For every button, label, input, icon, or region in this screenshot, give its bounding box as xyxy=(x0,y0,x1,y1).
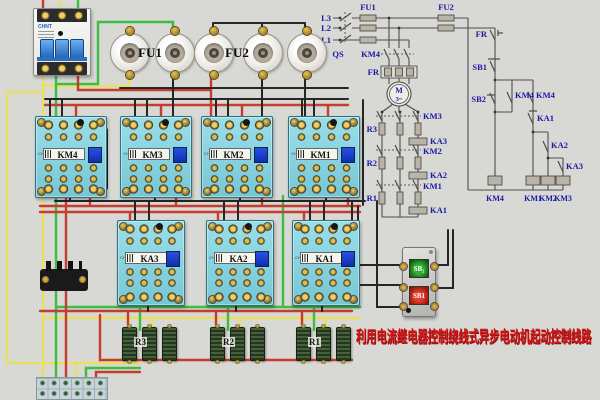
contactor-label: KM4 xyxy=(43,148,85,160)
fu2-photo-label: FU2 xyxy=(222,45,252,61)
terminal-row[interactable] xyxy=(294,163,354,173)
contactor-km1[interactable]: CHNT KM1 xyxy=(288,116,360,198)
coil-window xyxy=(255,251,269,267)
terminal-row[interactable] xyxy=(207,163,267,173)
coil-window xyxy=(341,251,355,267)
fu1-schematic-label: FU1 xyxy=(360,2,376,12)
terminal-row[interactable] xyxy=(41,163,101,173)
fuse-terminal xyxy=(171,71,179,79)
fuse-terminal xyxy=(259,71,267,79)
qs-label: QS xyxy=(332,49,344,59)
breaker-brand-text: CHNT xyxy=(38,24,52,30)
motor-m-label: M xyxy=(395,86,403,95)
terminal-row[interactable] xyxy=(126,119,186,131)
fr-main-label: FR xyxy=(368,67,380,77)
fuse-core xyxy=(170,48,180,58)
start-button-sb2[interactable]: SB₂ xyxy=(409,259,429,278)
fuse-terminal xyxy=(126,71,134,79)
coil-window xyxy=(166,251,180,267)
fuse-core xyxy=(125,48,135,58)
terminal-row[interactable] xyxy=(212,236,268,246)
ctl-fr-label: FR xyxy=(476,29,488,39)
rotor-ka1-label: KA1 xyxy=(430,205,447,215)
ctl-ka3-label: KA3 xyxy=(566,161,583,171)
diagram-title: 利用电流继电器控制绕线式异步电动机起动控制线路 xyxy=(356,323,592,347)
resistor-label: R3 xyxy=(134,337,147,347)
phase-l3-label: L3 xyxy=(321,13,331,23)
button-terminal[interactable] xyxy=(431,263,438,270)
schematic-diagram: L3 L2 L1 QS FU1 FU2 KM4 FR M 3~ KM3 R3 K… xyxy=(321,2,583,217)
connector-fins xyxy=(46,261,82,271)
resistor-coil xyxy=(336,327,351,361)
push-button-station[interactable]: SB₂ SB1 xyxy=(402,247,436,317)
breaker-toggle-row[interactable] xyxy=(40,39,84,57)
coil-window xyxy=(88,147,102,163)
rotor-r2-label: R2 xyxy=(367,158,377,168)
resistor-group-r2[interactable]: R2 xyxy=(210,327,263,361)
ctl-ka2-label: KA2 xyxy=(551,140,568,150)
terminal-row[interactable] xyxy=(298,278,354,288)
terminal-row[interactable] xyxy=(126,132,186,142)
terminal-row[interactable] xyxy=(212,267,268,277)
terminal-row[interactable] xyxy=(207,132,267,142)
terminal-strip[interactable] xyxy=(36,377,108,400)
relay-ka1[interactable]: CHNT KA1 xyxy=(292,220,360,306)
breaker-top-terminals[interactable] xyxy=(37,9,87,22)
wire-connector-block[interactable] xyxy=(40,269,88,291)
coil-km4-label: KM4 xyxy=(486,194,504,203)
terminal-row[interactable] xyxy=(123,267,179,277)
relay-ka3[interactable]: CHNT KA3 xyxy=(117,220,185,306)
coil-window xyxy=(173,147,187,163)
terminal-row[interactable] xyxy=(41,132,101,142)
contactor-label: KM2 xyxy=(209,148,251,160)
fuse-terminal xyxy=(259,27,267,35)
terminal-row[interactable] xyxy=(207,183,267,195)
relay-label: KA2 xyxy=(214,252,256,264)
aux-button-icon[interactable] xyxy=(77,119,84,126)
terminal-row[interactable] xyxy=(207,119,267,131)
rotor-km2-label: KM2 xyxy=(423,146,442,156)
terminal-row[interactable] xyxy=(123,223,179,235)
rotor-r1-label: R1 xyxy=(367,193,377,203)
terminal-row[interactable] xyxy=(298,236,354,246)
resistor-label: R1 xyxy=(308,337,321,347)
resistor-group-r3[interactable]: R3 xyxy=(122,327,175,361)
resistor-coil xyxy=(162,327,177,361)
rotor-ka3-label: KA3 xyxy=(430,136,447,146)
resistor-group-r1[interactable]: R1 xyxy=(296,327,349,361)
coil-window xyxy=(341,147,355,163)
coil-window xyxy=(254,147,268,163)
phase-l2-label: L2 xyxy=(321,23,331,33)
breaker-toggle-1[interactable] xyxy=(40,39,54,59)
fu2-schematic-label: FU2 xyxy=(438,2,454,12)
fuse-core xyxy=(258,48,268,58)
aux-button-icon[interactable] xyxy=(330,119,337,126)
ctl-sb1-label: SB1 xyxy=(472,62,487,72)
contactor-label: KM3 xyxy=(128,148,170,160)
relay-ka2[interactable]: CHNT KA2 xyxy=(206,220,274,306)
terminal-row[interactable] xyxy=(41,183,101,195)
fuse-terminal xyxy=(303,27,311,35)
rotor-r3-label: R3 xyxy=(367,124,377,134)
breaker-toggle-3[interactable] xyxy=(70,39,84,59)
breaker-bottom-terminals[interactable] xyxy=(37,62,87,75)
breaker-test-button[interactable] xyxy=(58,31,63,36)
terminal-row[interactable] xyxy=(123,236,179,246)
fuse-fu2-3[interactable] xyxy=(287,33,327,73)
button-terminal[interactable] xyxy=(431,284,438,291)
ctl-sb2-label: SB2 xyxy=(471,94,486,104)
terminal-row[interactable] xyxy=(123,278,179,288)
terminal-row[interactable] xyxy=(294,183,354,195)
ctl-ka1-label: KA1 xyxy=(537,113,554,123)
wiring-simulation-screen: L3 L2 L1 QS FU1 FU2 KM4 FR M 3~ KM3 R3 K… xyxy=(0,0,600,400)
terminal-row[interactable] xyxy=(41,119,101,131)
terminal-row[interactable] xyxy=(212,278,268,288)
terminal-row[interactable] xyxy=(212,223,268,235)
breaker-rating-marks xyxy=(38,31,54,38)
fuse-core xyxy=(302,48,312,58)
fuse-terminal xyxy=(210,27,218,35)
fuse-terminal xyxy=(126,27,134,35)
rotor-km1-label: KM1 xyxy=(423,181,442,191)
fuse-terminal xyxy=(210,71,218,79)
schematic-lines xyxy=(333,18,563,217)
coil-km3-label: KM3 xyxy=(554,194,572,203)
terminal-row[interactable] xyxy=(294,132,354,142)
circuit-breaker[interactable]: CHNT xyxy=(33,8,91,76)
ctl-km4a-label: KM4 xyxy=(515,90,535,100)
fuse-terminal xyxy=(303,71,311,79)
aux-button-icon[interactable] xyxy=(243,119,250,126)
button-terminal[interactable] xyxy=(431,303,438,310)
panel-dot-icon xyxy=(406,308,411,313)
relay-label: KA3 xyxy=(125,252,167,264)
km4-main-label: KM4 xyxy=(361,49,381,59)
terminal-row[interactable] xyxy=(298,291,354,303)
contactor-label: KM1 xyxy=(296,148,338,160)
terminal-row[interactable] xyxy=(126,163,186,173)
rotor-km3-label: KM3 xyxy=(423,111,442,121)
panel-screw-icon xyxy=(429,250,433,254)
fuse-core xyxy=(209,48,219,58)
button-terminal[interactable] xyxy=(400,263,407,270)
terminal-row[interactable] xyxy=(126,183,186,195)
contactor-km4[interactable]: CHNT KM4 xyxy=(35,116,107,198)
terminal-row[interactable] xyxy=(298,223,354,235)
terminal-row[interactable] xyxy=(212,291,268,303)
resistor-coil xyxy=(250,327,265,361)
terminal-row[interactable] xyxy=(294,119,354,131)
stop-button-sb1[interactable]: SB1 xyxy=(409,286,429,305)
terminal-row[interactable] xyxy=(298,267,354,277)
button-terminal[interactable] xyxy=(400,284,407,291)
fu1-photo-label: FU1 xyxy=(136,45,164,61)
relay-label: KA1 xyxy=(300,252,342,264)
breaker-toggle-2[interactable] xyxy=(55,39,69,59)
resistor-label: R2 xyxy=(222,337,235,347)
contactor-km2[interactable]: CHNT KM2 xyxy=(201,116,273,198)
terminal-row[interactable] xyxy=(123,291,179,303)
breaker-blue-band xyxy=(37,57,87,61)
motor-phase-label: 3~ xyxy=(396,96,403,103)
contactor-km3[interactable]: CHNT KM3 xyxy=(120,116,192,198)
rotor-ka2-label: KA2 xyxy=(430,170,447,180)
fuse-terminal xyxy=(171,27,179,35)
aux-button-icon[interactable] xyxy=(162,119,169,126)
ctl-km4b-label: KM4 xyxy=(536,90,556,100)
